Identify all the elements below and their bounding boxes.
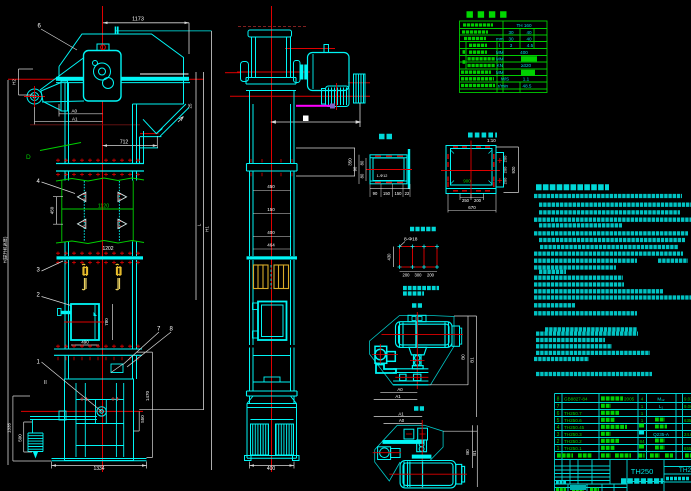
svg-text:80: 80 <box>360 160 365 165</box>
svg-text:MM: MM <box>496 50 504 55</box>
svg-text:1: 1 <box>641 404 644 409</box>
svg-text:1-Φ12: 1-Φ12 <box>377 174 388 178</box>
svg-text:TH250.45: TH250.45 <box>564 425 585 430</box>
svg-text:6: 6 <box>557 411 560 417</box>
svg-text:1.1: 1.1 <box>523 77 530 82</box>
svg-text:400: 400 <box>520 50 528 55</box>
svg-text:1: 1 <box>557 446 560 452</box>
svg-text:B1: B1 <box>470 357 475 363</box>
svg-text:A1: A1 <box>398 412 404 417</box>
svg-text:TH250.7: TH250.7 <box>564 411 582 416</box>
svg-text:200: 200 <box>503 166 508 173</box>
svg-text:8: 8 <box>557 397 560 403</box>
svg-text:TH 160: TH 160 <box>516 23 532 28</box>
svg-text:B1: B1 <box>472 450 477 456</box>
svg-text:150: 150 <box>395 191 403 196</box>
svg-text:1: 1 <box>641 418 644 423</box>
svg-text:200: 200 <box>503 155 508 162</box>
svg-text:4: 4 <box>641 397 644 402</box>
svg-text:150: 150 <box>383 191 391 196</box>
svg-text:48.5: 48.5 <box>523 83 532 88</box>
svg-text:5: 5 <box>557 418 560 424</box>
svg-text:Q235-A: Q235-A <box>653 432 670 437</box>
svg-text:250: 250 <box>462 198 470 203</box>
svg-text:2: 2 <box>557 439 560 445</box>
svg-text:GB8827-84: GB8827-84 <box>564 397 588 402</box>
svg-text:300: 300 <box>415 273 423 278</box>
svg-text:550: 550 <box>140 415 145 423</box>
svg-text:9.06: 9.06 <box>684 404 691 409</box>
svg-text:L₁: L₁ <box>659 404 664 409</box>
svg-text:KN: KN <box>497 63 503 68</box>
svg-text:450: 450 <box>267 184 275 189</box>
svg-text:1:10: 1:10 <box>487 138 496 143</box>
svg-text:l: l <box>499 43 500 48</box>
svg-text:900: 900 <box>463 179 471 184</box>
svg-text:M₁₂: M₁₂ <box>657 397 664 402</box>
svg-text:500: 500 <box>18 434 23 442</box>
svg-text:A0: A0 <box>397 387 403 392</box>
svg-text:3: 3 <box>557 432 560 438</box>
svg-text:1120: 1120 <box>98 204 109 210</box>
svg-text:430: 430 <box>387 253 392 261</box>
svg-text:84: 84 <box>639 439 645 444</box>
svg-text:90: 90 <box>373 191 378 196</box>
svg-text:400: 400 <box>267 230 275 235</box>
svg-text:30: 30 <box>508 36 514 41</box>
svg-text:90: 90 <box>353 166 358 171</box>
svg-text:200: 200 <box>503 177 508 184</box>
svg-text:80: 80 <box>360 173 365 178</box>
svg-text:7: 7 <box>557 404 560 410</box>
svg-text:200: 200 <box>474 198 482 203</box>
svg-text:635: 635 <box>684 418 691 423</box>
svg-text:TH250.1: TH250.1 <box>564 446 582 451</box>
svg-text:4.5: 4.5 <box>527 43 534 48</box>
svg-text:670: 670 <box>468 205 476 210</box>
svg-text:TH250.3: TH250.3 <box>564 432 582 437</box>
svg-text:655: 655 <box>684 446 691 451</box>
svg-text:200: 200 <box>403 273 411 278</box>
svg-text:1335: 1335 <box>7 422 12 433</box>
svg-text:400: 400 <box>267 466 276 472</box>
svg-text:A0: A0 <box>72 109 78 114</box>
svg-text:D: D <box>26 154 31 161</box>
svg-text:464: 464 <box>267 242 275 247</box>
svg-text:8-Φ18: 8-Φ18 <box>404 237 418 243</box>
svg-text:150: 150 <box>267 207 275 212</box>
svg-text:1202: 1202 <box>102 246 113 252</box>
svg-text:200: 200 <box>427 273 435 278</box>
svg-text:TH2: TH2 <box>679 467 691 474</box>
svg-text:1: 1 <box>641 411 644 416</box>
svg-text:A1: A1 <box>72 116 78 121</box>
svg-text:350: 350 <box>348 158 353 166</box>
svg-text:MM: MM <box>496 70 504 75</box>
svg-text:40: 40 <box>526 30 532 35</box>
svg-text:1470: 1470 <box>145 390 150 401</box>
svg-text:3: 3 <box>510 43 513 48</box>
svg-text:40: 40 <box>526 36 532 41</box>
svg-text:1334: 1334 <box>93 466 104 472</box>
svg-text:≥320: ≥320 <box>521 63 532 68</box>
svg-text:A1: A1 <box>395 394 401 399</box>
svg-text:H1: H1 <box>205 226 210 232</box>
svg-text:TH250: TH250 <box>631 467 654 476</box>
svg-text:712: 712 <box>120 140 129 146</box>
svg-text:mm: mm <box>496 36 504 41</box>
svg-text:25: 25 <box>188 103 193 109</box>
svg-text:M/S: M/S <box>501 77 509 82</box>
svg-text:II: II <box>44 380 47 386</box>
svg-text:r/min: r/min <box>498 83 509 88</box>
svg-text:2005: 2005 <box>624 397 635 402</box>
svg-text:B0: B0 <box>461 354 466 360</box>
svg-text:450: 450 <box>50 206 55 214</box>
svg-text:H2: H2 <box>12 79 17 85</box>
svg-text:A0: A0 <box>399 418 405 423</box>
svg-text:MM: MM <box>496 57 504 62</box>
svg-text:TH250.6: TH250.6 <box>564 418 582 423</box>
svg-text:490: 490 <box>81 340 89 345</box>
svg-text:B0: B0 <box>465 449 470 455</box>
svg-text:9.03: 9.03 <box>684 397 691 402</box>
svg-text:780: 780 <box>104 318 109 326</box>
svg-text:920: 920 <box>511 166 516 174</box>
svg-text:22: 22 <box>405 191 410 196</box>
svg-text:1173: 1173 <box>132 17 144 23</box>
svg-text:H(提升机高度): H(提升机高度) <box>2 236 9 263</box>
svg-text:TH250.2: TH250.2 <box>564 439 582 444</box>
svg-text:30: 30 <box>508 30 514 35</box>
svg-text:24.6: 24.6 <box>684 432 691 437</box>
svg-text:4: 4 <box>557 425 560 431</box>
